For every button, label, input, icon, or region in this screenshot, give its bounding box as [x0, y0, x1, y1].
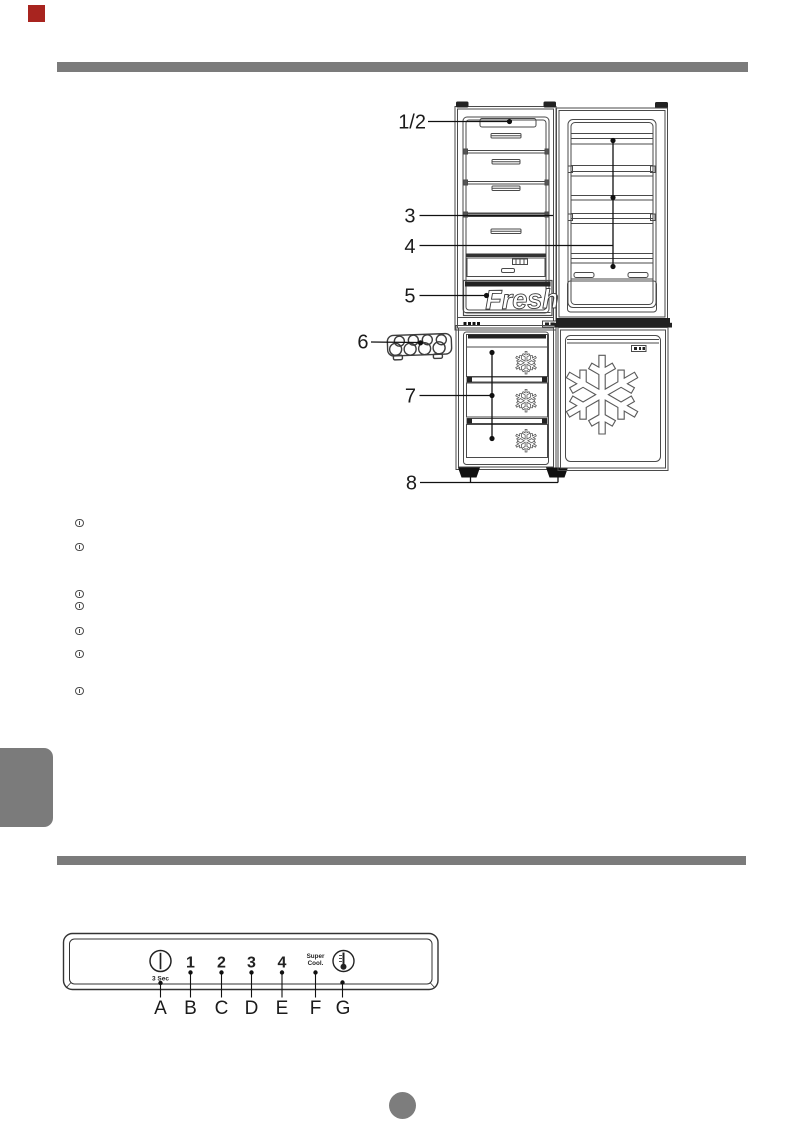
point-label-e: E: [276, 998, 289, 1019]
note-bullet-icon: [75, 687, 84, 696]
chapter-side-tab: [0, 748, 53, 827]
super-cool-label: Super Cool.: [307, 953, 325, 967]
callout-label-4: 4: [404, 236, 415, 258]
egg-tray-icon: [387, 333, 452, 360]
note-bullet-icon: [75, 519, 84, 528]
point-label-a: A: [154, 998, 167, 1019]
callout-label-5: 5: [404, 286, 415, 308]
point-label-c: C: [215, 998, 229, 1019]
setting-label-4: 4: [278, 955, 287, 972]
power-icon: [150, 951, 171, 972]
hinge-caps: [456, 102, 668, 109]
control-panel-diagram: 3 Sec 1 2 3 4 Super Cool.: [55, 925, 450, 1020]
note-bullet-icon: [75, 627, 84, 636]
panel-leader-lines: [161, 973, 343, 998]
callout-label-8: 8: [406, 473, 417, 495]
setting-label-1: 1: [186, 955, 195, 972]
snowflake-icon: ❄: [513, 384, 539, 420]
note-bullet-icon: [75, 650, 84, 659]
point-label-g: G: [336, 998, 351, 1019]
callout-label-3: 3: [404, 206, 415, 228]
section-divider-middle: [57, 856, 746, 865]
note-bullet-icon: [75, 543, 84, 552]
callout-label-1-2: 1/2: [398, 112, 426, 134]
freezer-cabinet: [456, 326, 556, 470]
fresh-drawer-label: Fresh: [485, 284, 559, 315]
note-bullet-icon: [75, 590, 84, 599]
snowflake-icon: ❄: [513, 424, 539, 460]
manual-page: Fresh: [0, 0, 805, 1145]
page-number-dot: [389, 1092, 416, 1119]
section-divider-top: [57, 62, 748, 72]
svg-text:Super: Super: [307, 953, 325, 960]
setting-label-3: 3: [247, 955, 256, 972]
callout-label-7: 7: [405, 386, 416, 408]
svg-text:Cool.: Cool.: [308, 960, 324, 967]
page-corner-mark: [28, 5, 45, 22]
thermometer-icon: [333, 951, 354, 972]
snowflake-icon: ❄: [513, 346, 539, 382]
fridge-base-marks: [464, 321, 558, 327]
note-bullet-icon: [75, 602, 84, 611]
point-label-f: F: [310, 998, 322, 1019]
refrigerator-diagram: Fresh: [340, 95, 690, 500]
point-label-b: B: [184, 998, 197, 1019]
point-label-d: D: [245, 998, 259, 1019]
setting-label-2: 2: [217, 955, 226, 972]
callout-label-6: 6: [357, 332, 368, 354]
snowflake-large-icon: ❄: [557, 335, 648, 460]
